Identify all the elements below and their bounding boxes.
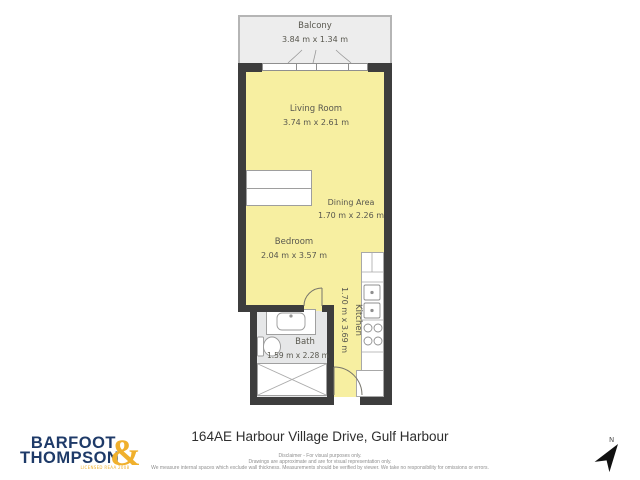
living-room-label: Living Room 3.74 m x 2.61 m <box>246 103 386 129</box>
wall <box>238 63 246 312</box>
floor-plan-page: N Balcony 3.84 m x 1.34 m Living Room 3.… <box>0 0 640 480</box>
wall <box>238 305 304 312</box>
barfoot-thompson-logo: BARFOOT THOMPSON & LICENSED REAA 2008 <box>20 436 150 474</box>
bath-label: Bath <box>283 336 327 349</box>
sliding-door <box>262 63 368 71</box>
logo-tagline: LICENSED REAA 2008 <box>70 465 140 470</box>
shower-box <box>257 363 327 396</box>
room-dims: 1.70 m x 2.26 m <box>312 209 390 222</box>
balcony-label: Balcony 3.84 m x 1.34 m <box>238 20 392 46</box>
wall <box>368 63 392 72</box>
room-name: Living Room <box>246 103 386 116</box>
dining-area-label: Dining Area 1.70 m x 2.26 m <box>312 196 390 222</box>
wardrobe <box>246 170 312 206</box>
logo-line2: THOMPSON <box>20 451 116 466</box>
room-dims: 3.84 m x 1.34 m <box>238 33 392 46</box>
room-name: Balcony <box>238 20 392 33</box>
room-name: Bedroom <box>246 236 342 249</box>
wall <box>250 397 334 405</box>
kitchen-counter <box>361 252 384 372</box>
room-dims: 2.04 m x 3.57 m <box>246 249 342 262</box>
logo-wordmark: BARFOOT THOMPSON <box>20 436 116 465</box>
room-name: Dining Area <box>312 196 390 209</box>
room-dims: 3.74 m x 2.61 m <box>246 116 386 129</box>
bath-vanity <box>266 309 316 335</box>
wall <box>360 397 392 405</box>
wall <box>238 63 262 72</box>
room-name: Kitchen <box>351 268 364 372</box>
bath-dims: 1.59 m x 2.28 m <box>252 349 344 362</box>
bedroom-label: Bedroom 2.04 m x 3.57 m <box>246 236 342 262</box>
kitchen-counter-bottom <box>356 370 384 397</box>
